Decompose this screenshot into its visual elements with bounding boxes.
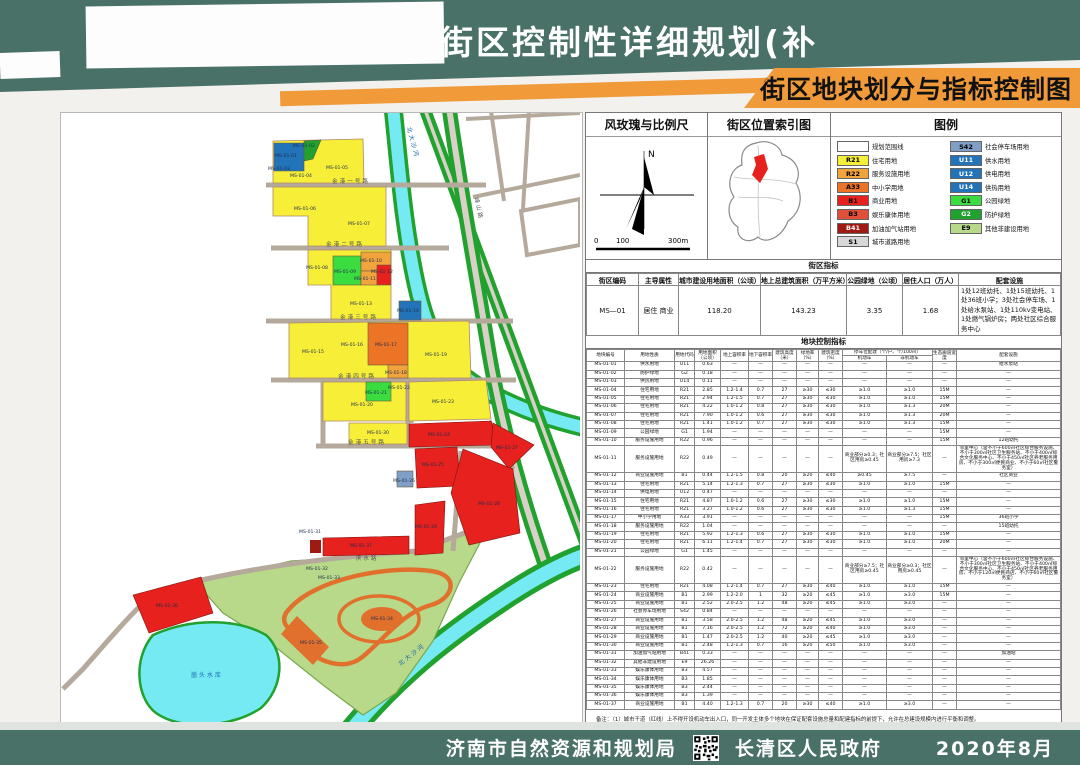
location-index-title: 街区位置索引图 <box>708 113 830 137</box>
plot-cell: 加油加气站用地 <box>625 651 675 659</box>
plot-cell: ≥1.0 <box>887 531 933 539</box>
plot-cell: MS-01-30 <box>587 642 625 650</box>
plot-cell: B1 <box>675 473 695 481</box>
plot-cell: 娱乐康体用地 <box>625 676 675 684</box>
plot-cell: — <box>773 557 797 584</box>
plot-cell: 1.2 <box>749 600 773 608</box>
parcel-label: MS-01-14 <box>397 308 419 314</box>
plot-cell: MS-01-12 <box>587 473 625 481</box>
district-indicator-table: 街区编码主导属性城市建设用地面积（公顷）地上总建筑面积（万平方米）公园绿地（公顷… <box>586 273 1061 336</box>
plot-cell: — <box>773 489 797 497</box>
plot-cell: — <box>957 600 1061 608</box>
plot-cell: MS-01-26 <box>587 609 625 617</box>
plot-cell: — <box>957 548 1061 556</box>
plot-cell: — <box>721 693 749 701</box>
plot-cell: — <box>819 659 843 667</box>
legend-item: B3娱乐康体用地 <box>837 209 944 220</box>
plot-cell: — <box>957 506 1061 514</box>
plot-cell: ≥30 <box>797 531 819 539</box>
plot-cell: 15M <box>933 481 957 489</box>
plot-cell: ≥1.0 <box>843 412 887 420</box>
plot-row: MS-01-23住宅用地R214.081.2-1.40.727≥30≤40≥1.… <box>587 584 1061 592</box>
plot-row: MS-01-29商业设施用地B11.472.0-2.51.240≥20≤45≥1… <box>587 634 1061 642</box>
plot-cell: 27 <box>773 404 797 412</box>
legend-label: 供水用地 <box>985 156 1010 165</box>
plot-cell: 0.42 <box>695 557 721 584</box>
plot-cell: ≤45 <box>819 592 843 600</box>
plot-cell: 16 <box>773 642 797 650</box>
plot-cell: G1 <box>675 548 695 556</box>
plot-cell: — <box>843 693 887 701</box>
plot-cell: — <box>721 489 749 497</box>
plot-cell: 服务设施用地 <box>625 557 675 584</box>
plot-cell: R21 <box>675 412 695 420</box>
plot-cell: ≥1.0 <box>887 540 933 548</box>
legend-box: 图例 规划范围线R21住宅用地R22服务设施用地A33中小学用地B1商业用地B3… <box>831 113 1061 259</box>
plot-cell: ≤30 <box>819 498 843 506</box>
parcel-label: MS-01-01 <box>275 153 297 159</box>
plot-cell: 商业部分≥0.3；社区用房≥0.45 <box>887 557 933 584</box>
plot-cell: ≤45 <box>819 600 843 608</box>
plot-cell: ≥30 <box>797 701 819 709</box>
parcel-MS-01-31 <box>310 540 321 553</box>
svg-text:0: 0 <box>594 237 598 245</box>
plot-cell: — <box>797 446 819 473</box>
legend-chip: A33 <box>837 182 869 193</box>
plot-cell: — <box>797 429 819 437</box>
plot-cell: MS-01-35 <box>587 684 625 692</box>
plot-cell: — <box>933 659 957 667</box>
plot-cell: ≥1.3 <box>887 412 933 420</box>
plot-cell: — <box>773 362 797 370</box>
plot-cell: — <box>819 667 843 675</box>
road-label: 滨水路 <box>356 554 379 562</box>
plot-cell: 住宅用地 <box>625 420 675 428</box>
plot-cell: MS-01-06 <box>587 404 625 412</box>
plot-cell: MS-01-27 <box>587 617 625 625</box>
parcel-label: MS-01-18 <box>385 370 407 376</box>
plot-cell: 1.2 <box>749 617 773 625</box>
plot-row: MS-01-05住宅用地R212.941.2-1.50.727≥30≤30≥1.… <box>587 395 1061 403</box>
plot-cell: ≥1.0 <box>843 540 887 548</box>
plot-cell: B1 <box>675 634 695 642</box>
road-label: 金港二号路 <box>326 240 364 248</box>
district-cell: 118.20 <box>679 286 761 336</box>
plot-cell: — <box>749 515 773 523</box>
plot-cell: ≥1.0 <box>843 634 887 642</box>
plot-cell: MS-01-31 <box>587 651 625 659</box>
legend-item: 规划范围线 <box>837 141 944 152</box>
plot-cell: — <box>957 489 1061 497</box>
district-header-cell: 街区编码 <box>587 274 639 286</box>
plot-cell: 加油站 <box>957 651 1061 659</box>
plot-cell: 商业部分≥7.5；社区用房≥0.45 <box>843 557 887 584</box>
legend-label: 供热用地 <box>985 183 1010 192</box>
plot-cell: ≥3.0 <box>887 600 933 608</box>
district-header-cell: 地上总建筑面积（万平方米） <box>761 274 847 286</box>
road-label: 金港四号路 <box>338 372 376 380</box>
plot-header-cell: 建筑高度（米） <box>773 350 797 362</box>
plot-cell: B1 <box>675 617 695 625</box>
plot-cell: ≤30 <box>819 481 843 489</box>
plot-row: MS-01-28商业设施用地B17.162.0-2.51.272≥20≤40≥1… <box>587 625 1061 633</box>
legend-title: 图例 <box>831 113 1061 137</box>
plot-cell: 0.44 <box>695 473 721 481</box>
parcel-label: MS-01-03 <box>268 166 290 172</box>
plot-cell: 6.11 <box>695 540 721 548</box>
plot-row: MS-01-18服务设施用地R221.04————————15班幼托 <box>587 523 1061 531</box>
plot-cell: R21 <box>675 481 695 489</box>
legend-column-left: 规划范围线R21住宅用地R22服务设施用地A33中小学用地B1商业用地B3娱乐康… <box>837 141 944 259</box>
legend-label: 城市道路用地 <box>872 237 910 246</box>
plot-cell: 0.7 <box>749 395 773 403</box>
plot-cell: 公园绿地 <box>625 429 675 437</box>
plot-cell: — <box>797 370 819 378</box>
plot-cell: — <box>957 684 1061 692</box>
parcel-label: MS-01-06 <box>294 206 316 212</box>
plot-cell: 72 <box>773 625 797 633</box>
plot-cell: ≥3.0 <box>887 617 933 625</box>
plot-cell: ≥20 <box>797 617 819 625</box>
plot-cell: 商业设施用地 <box>625 473 675 481</box>
plot-cell: 供热用地 <box>625 378 675 386</box>
plot-cell: 2.48 <box>695 642 721 650</box>
plot-cell: R21 <box>675 540 695 548</box>
plot-cell: ≥20 <box>797 634 819 642</box>
plot-cell: G1 <box>675 429 695 437</box>
plot-cell: 27 <box>773 531 797 539</box>
plot-cell: — <box>819 437 843 445</box>
plot-cell: 住宅用地 <box>625 531 675 539</box>
plot-cell: 0.7 <box>749 481 773 489</box>
plot-cell: — <box>843 667 887 675</box>
plot-cell: 1.04 <box>695 523 721 531</box>
plot-cell: 娱乐康体用地 <box>625 693 675 701</box>
plot-cell: — <box>797 523 819 531</box>
plot-cell: — <box>843 437 887 445</box>
plot-cell: 2.94 <box>695 395 721 403</box>
plot-cell: 防护绿地 <box>625 370 675 378</box>
plot-cell: — <box>749 489 773 497</box>
qr-code <box>693 735 719 761</box>
location-index-map <box>708 137 829 259</box>
plot-row: MS-01-12商业设施用地B10.441.2-1.50.820≥20≤40≥0… <box>587 473 1061 481</box>
plot-cell: — <box>933 378 957 386</box>
plot-cell: ≥1.0 <box>843 387 887 395</box>
plot-cell: — <box>819 370 843 378</box>
plot-cell: 27 <box>773 481 797 489</box>
plot-cell: — <box>773 523 797 531</box>
plot-cell: 服务设施用地 <box>625 437 675 445</box>
legend-item: S1城市道路用地 <box>837 236 944 247</box>
plot-cell: — <box>797 676 819 684</box>
plot-cell: — <box>721 548 749 556</box>
plot-cell: 0.7 <box>749 540 773 548</box>
plot-cell: 2.52 <box>695 600 721 608</box>
legend-chip: B3 <box>837 209 869 220</box>
plot-cell: 1.2-1.4 <box>721 584 749 592</box>
plot-cell: 4.22 <box>695 404 721 412</box>
plot-cell: 0.8 <box>749 473 773 481</box>
plot-cell: 社区商业 <box>957 473 1061 481</box>
legend-item: B41加油加气站用地 <box>837 223 944 234</box>
district-cell: 3.35 <box>847 286 903 336</box>
plot-cell: — <box>749 429 773 437</box>
plot-cell: — <box>721 684 749 692</box>
plot-cell: 住宅用地 <box>625 387 675 395</box>
legend-chip: G2 <box>950 209 982 220</box>
legend-chip: S1 <box>837 236 869 247</box>
plot-cell: — <box>797 489 819 497</box>
plot-cell: — <box>797 659 819 667</box>
plot-cell: 商业设施用地 <box>625 617 675 625</box>
wind-petal-n <box>644 157 654 195</box>
plot-cell: — <box>819 378 843 386</box>
plot-header-cell: 地下容积率 <box>749 350 773 362</box>
plot-cell: ≥1.0 <box>843 592 887 600</box>
parcel-label: MS-01-12 <box>371 269 393 275</box>
district-cell: MS—01 <box>587 286 639 336</box>
plot-row: MS-01-17中小学用地A333.91———————15M36班小学 <box>587 515 1061 523</box>
plot-cell: 15M <box>933 506 957 514</box>
plot-cell: ≥1.0 <box>887 395 933 403</box>
plot-row: MS-01-21公园绿地G11.45————————— <box>587 548 1061 556</box>
plot-cell: — <box>721 651 749 659</box>
plot-cell: ≥30 <box>797 498 819 506</box>
plot-cell: — <box>797 437 819 445</box>
plot-cell: MS-01-24 <box>587 592 625 600</box>
plot-cell: B3 <box>675 676 695 684</box>
plot-cell: — <box>749 693 773 701</box>
plot-cell: 2.0-2.5 <box>721 600 749 608</box>
plot-cell: ≥1.3 <box>887 420 933 428</box>
legend-chip: E9 <box>950 223 982 234</box>
plot-cell: 中小学用地 <box>625 515 675 523</box>
plot-cell: MS-01-01 <box>587 362 625 370</box>
plot-cell: ≥7.5 <box>887 473 933 481</box>
plot-row: MS-01-37商业设施用地B14.401.2-1.30.720≥30≤40≥1… <box>587 701 1061 709</box>
legend-label: 其他非建设用地 <box>985 224 1029 233</box>
parcel-label: MS-01-24 <box>428 432 450 438</box>
plot-cell: — <box>721 659 749 667</box>
legend-item: U14供热用地 <box>950 182 1057 193</box>
plot-cell: — <box>819 609 843 617</box>
legend-item: B1商业用地 <box>837 195 944 206</box>
plot-cell: — <box>933 473 957 481</box>
plot-header-cell: 生态廊道宽度 <box>933 350 957 362</box>
plot-cell: — <box>843 684 887 692</box>
plot-cell: ≤40 <box>819 473 843 481</box>
plot-cell: — <box>749 370 773 378</box>
plot-cell: MS-01-37 <box>587 701 625 709</box>
plot-control-table: 地块编号用地性质用地代码用地面积（公顷）地上容积率地下容积率建筑高度（米）绿地率… <box>586 349 1061 710</box>
plot-table-band: 地块控制指标 <box>586 336 1061 349</box>
plot-cell: — <box>819 362 843 370</box>
plot-cell: B1 <box>675 642 695 650</box>
plot-cell: U11 <box>675 362 695 370</box>
plot-cell: ≥1.0 <box>887 481 933 489</box>
plot-cell: — <box>957 429 1061 437</box>
plot-cell: — <box>721 557 749 584</box>
plot-cell: — <box>887 659 933 667</box>
plot-cell: ≥1.0 <box>887 584 933 592</box>
plot-cell: ≤30 <box>819 387 843 395</box>
plot-cell: — <box>933 523 957 531</box>
plot-cell: ≤30 <box>819 540 843 548</box>
plot-cell: U12 <box>675 489 695 497</box>
legend-chip: B41 <box>837 223 869 234</box>
plot-cell: — <box>957 667 1061 675</box>
plot-row: MS-01-24商业设施用地B12.991.2-2.0132≥20≤45≥1.0… <box>587 592 1061 600</box>
plot-row: MS-01-10服务设施用地R220.96———————15M12班幼托 <box>587 437 1061 445</box>
legend-column-right: S42社会停车场用地U11供水用地U12供电用地U14供热用地G1公园绿地G2防… <box>950 141 1057 259</box>
plot-row: MS-01-07住宅用地R217.901.0-1.20.627≥30≤30≥1.… <box>587 412 1061 420</box>
sheet-subtitle-plate: 街区地块划分与指标控制图 <box>744 68 1080 108</box>
plot-cell: — <box>843 489 887 497</box>
plot-cell: — <box>721 446 749 473</box>
district-header-cell: 城市建设用地面积（公顷） <box>679 274 761 286</box>
plot-cell: ≤40 <box>819 584 843 592</box>
legend-label: 规划范围线 <box>872 142 903 151</box>
plot-cell: 4.40 <box>695 701 721 709</box>
plot-row: MS-01-19住宅用地R215.921.2-1.30.627≥30≤30≥1.… <box>587 531 1061 539</box>
plot-cell: B3 <box>675 684 695 692</box>
plot-cell: 7.90 <box>695 412 721 420</box>
plot-cell: 商业设施用地 <box>625 625 675 633</box>
plot-cell: MS-01-11 <box>587 446 625 473</box>
plot-cell: R21 <box>675 584 695 592</box>
plot-cell: — <box>887 523 933 531</box>
plot-cell: 36班小学 <box>957 515 1061 523</box>
plot-cell: 1.39 <box>695 693 721 701</box>
plot-header-cell: 绿地率（%） <box>797 350 819 362</box>
plot-cell: MS-01-03 <box>587 378 625 386</box>
plot-cell: ≥3.0 <box>887 625 933 633</box>
plot-cell: 1.0-1.2 <box>721 506 749 514</box>
parcel-label: MS-01-07 <box>348 221 370 227</box>
plot-cell: R21 <box>675 498 695 506</box>
plot-cell: ≥1.0 <box>843 600 887 608</box>
plot-cell: — <box>749 667 773 675</box>
plot-cell: — <box>957 395 1061 403</box>
parcel-label: MS-01-29 <box>415 524 437 530</box>
plot-cell: — <box>933 370 957 378</box>
plot-cell: 20M <box>933 540 957 548</box>
plot-cell: ≥1.0 <box>843 642 887 650</box>
plot-cell: 商业部分≥7.5；社区用房≥7.3 <box>887 446 933 473</box>
plot-cell: — <box>749 651 773 659</box>
plot-cell: 住宅用地 <box>625 404 675 412</box>
plot-cell: 住宅用地 <box>625 481 675 489</box>
plot-cell: 邻里中心（含不小于600㎡社区综合服务设施、不小于300㎡社区卫生服务站、不小于… <box>957 446 1061 473</box>
plot-cell: — <box>819 676 843 684</box>
plot-cell: — <box>933 609 957 617</box>
plot-cell: — <box>957 378 1061 386</box>
plot-cell: 娱乐康体用地 <box>625 667 675 675</box>
plot-cell: — <box>773 659 797 667</box>
plot-cell: — <box>887 676 933 684</box>
plot-cell: 1.2-1.5 <box>721 395 749 403</box>
plot-cell: — <box>957 412 1061 420</box>
plot-cell: — <box>933 651 957 659</box>
plot-cell: ≥1.3 <box>887 506 933 514</box>
index-panel: 风玫瑰与比例尺 N 0 100 300m <box>585 112 1062 729</box>
footer-org-2: 长清区人民政府 <box>735 734 882 761</box>
plot-cell: ≥3.0 <box>887 642 933 650</box>
plot-cell: ≥0.45 <box>843 473 887 481</box>
plot-row: MS-01-15住宅用地R214.871.0-1.20.627≥30≤30≥1.… <box>587 498 1061 506</box>
plot-cell: ≤30 <box>819 412 843 420</box>
plot-cell: — <box>773 437 797 445</box>
plot-cell: — <box>887 437 933 445</box>
parcel-label: MS-01-19 <box>425 352 447 358</box>
plot-cell: 1.2-1.3 <box>721 481 749 489</box>
plot-cell: 1.0-1.2 <box>721 404 749 412</box>
plot-cell: — <box>887 362 933 370</box>
plot-cell: — <box>797 609 819 617</box>
parcel-label: MS-01-26 <box>393 478 415 484</box>
plot-cell: 20 <box>773 473 797 481</box>
plot-row: MS-01-26社会停车场用地S420.84————————— <box>587 609 1061 617</box>
plot-cell: 12班幼托 <box>957 437 1061 445</box>
plot-cell: 1.45 <box>695 548 721 556</box>
plot-cell: MS-01-23 <box>587 584 625 592</box>
district-cell: 居住 商业 <box>639 286 679 336</box>
parcel-label: MS-01-35 <box>300 640 322 646</box>
legend-chip <box>837 141 869 152</box>
plot-header-cell: 地上容积率 <box>721 350 749 362</box>
plan-sheet: 山镇金港街区控制性详细规划(补 街区地块划分与指标控制图 <box>0 0 1080 765</box>
plot-cell: 15M <box>933 387 957 395</box>
plot-cell: MS-01-25 <box>587 600 625 608</box>
legend-chip: U14 <box>950 182 982 193</box>
plot-cell: R21 <box>675 404 695 412</box>
plot-row: MS-01-22服务设施用地R220.42—————商业部分≥7.5；社区用房≥… <box>587 557 1061 584</box>
plot-cell: — <box>797 362 819 370</box>
road-label: 金港五号路 <box>348 438 386 446</box>
plot-row: MS-01-34娱乐康体用地B31.85————————— <box>587 676 1061 684</box>
plot-cell: — <box>957 584 1061 592</box>
plot-cell: ≤30 <box>819 395 843 403</box>
plot-cell: 0.84 <box>695 609 721 617</box>
district-cell: 1处12班幼托、1处15班幼托、1处36班小学；3处社会停车场、1处给水泵站、1… <box>959 286 1061 336</box>
plot-cell: ≥20 <box>797 473 819 481</box>
plot-cell: — <box>797 651 819 659</box>
plot-row: MS-01-32其他非建设用地E926.26————————— <box>587 659 1061 667</box>
parcel-label: MS-01-23 <box>432 399 454 405</box>
plot-row: MS-01-04住宅用地R212.851.2-1.40.727≥30≤30≥1.… <box>587 387 1061 395</box>
parcel-label: MS-01-36 <box>156 603 178 609</box>
plot-cell: ≥30 <box>797 387 819 395</box>
parcel-MS-01-12 <box>377 265 391 285</box>
plot-cell: 0.7 <box>749 701 773 709</box>
plot-cell: — <box>773 684 797 692</box>
plot-cell: — <box>721 429 749 437</box>
plot-cell: — <box>749 437 773 445</box>
plot-cell: MS-01-28 <box>587 625 625 633</box>
plot-cell: ≥1.0 <box>843 395 887 403</box>
plot-cell: — <box>819 684 843 692</box>
plot-cell: 4.87 <box>695 498 721 506</box>
plot-cell: — <box>749 446 773 473</box>
plot-row: MS-01-27商业设施用地B13.582.0-2.51.248≥20≤45≥1… <box>587 617 1061 625</box>
plot-cell: 1.0-1.2 <box>721 498 749 506</box>
plot-row: MS-01-14供电用地U120.47————————— <box>587 489 1061 497</box>
plot-cell: MS-01-02 <box>587 370 625 378</box>
plot-cell: — <box>721 370 749 378</box>
plot-cell: — <box>933 684 957 692</box>
plot-cell: MS-01-04 <box>587 387 625 395</box>
